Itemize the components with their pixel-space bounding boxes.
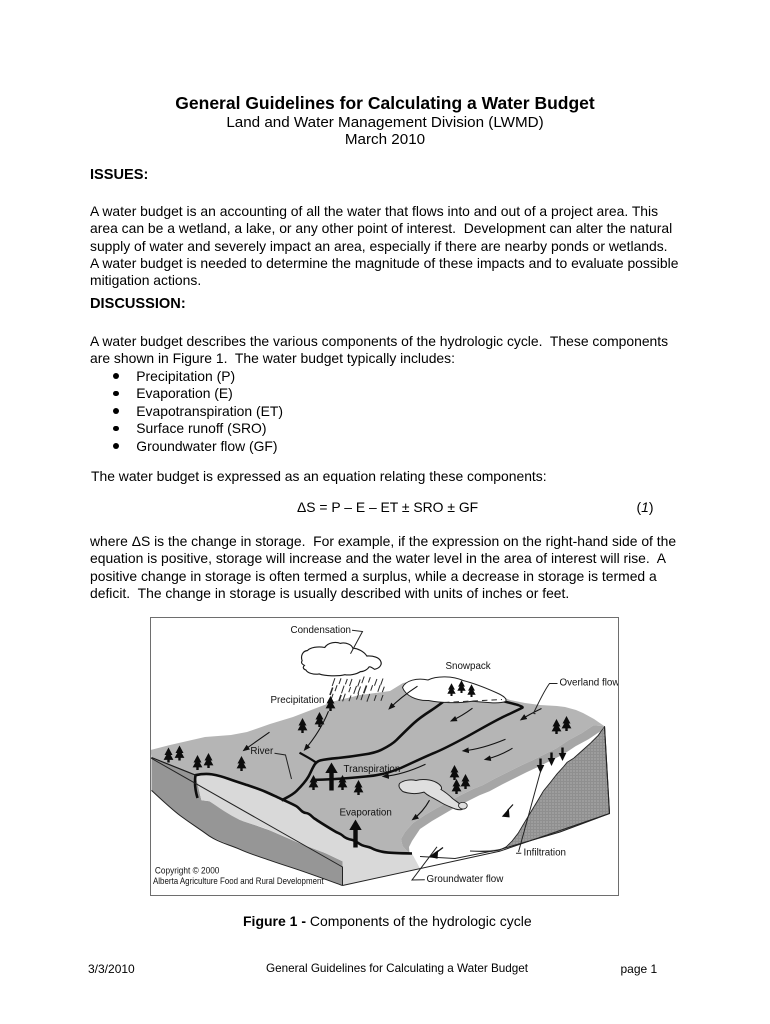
svg-text:Alberta Agriculture Food and R: Alberta Agriculture Food and Rural Devel… [153, 876, 324, 886]
svg-text:Transpiration: Transpiration [344, 764, 401, 775]
svg-text:Precipitation: Precipitation [271, 695, 325, 706]
svg-text:Evaporation: Evaporation [340, 807, 392, 818]
svg-text:Infiltration: Infiltration [524, 847, 566, 858]
svg-text:River: River [250, 746, 274, 757]
svg-text:Snowpack: Snowpack [446, 661, 491, 672]
svg-text:Condensation: Condensation [291, 625, 351, 636]
svg-text:Groundwater flow: Groundwater flow [427, 873, 505, 884]
svg-text:Copyright © 2000: Copyright © 2000 [155, 865, 220, 875]
svg-text:Overland flow: Overland flow [560, 677, 620, 688]
